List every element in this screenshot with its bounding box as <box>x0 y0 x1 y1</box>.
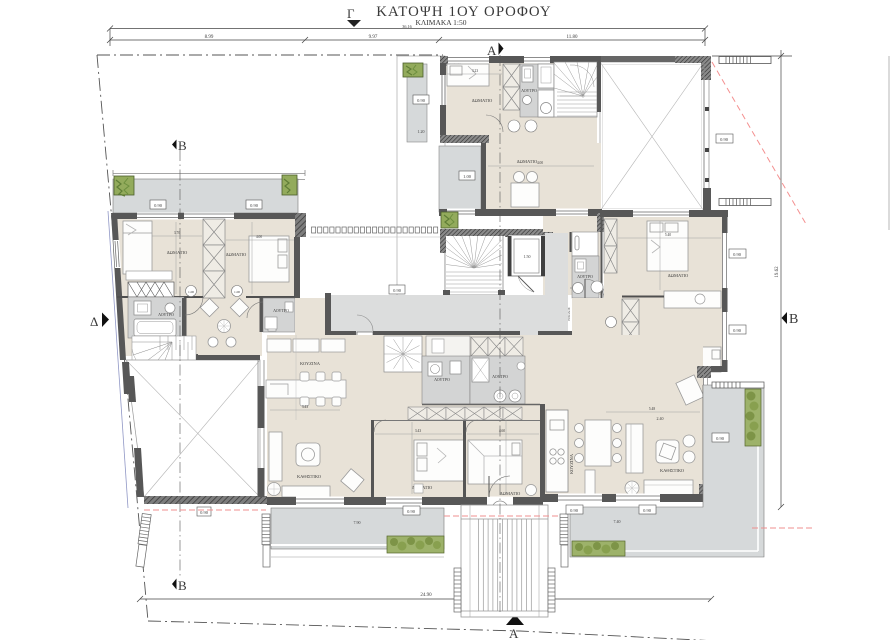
svg-text:7.40: 7.40 <box>614 519 621 524</box>
svg-text:0.90: 0.90 <box>250 203 259 208</box>
svg-text:ΔΩΜΑΤΙΟ: ΔΩΜΑΤΙΟ <box>517 159 538 164</box>
svg-text:1.50: 1.50 <box>524 254 531 259</box>
svg-text:3.23: 3.23 <box>472 69 478 73</box>
svg-text:ΔΩΜΑΤΙΟ: ΔΩΜΑΤΙΟ <box>668 273 689 278</box>
svg-text:ΚΟΥΖΙΝΑ: ΚΟΥΖΙΝΑ <box>300 361 321 366</box>
svg-text:3.70: 3.70 <box>174 231 180 235</box>
svg-text:8.99: 8.99 <box>205 35 214 40</box>
svg-text:Γ: Γ <box>347 6 355 21</box>
svg-text:0.90: 0.90 <box>154 203 163 208</box>
svg-text:0.90: 0.90 <box>200 510 209 515</box>
svg-text:5.48: 5.48 <box>649 407 655 411</box>
svg-text:ΕΙΣΟΔΟΣ: ΕΙΣΟΔΟΣ <box>567 307 571 320</box>
svg-text:3.43: 3.43 <box>415 429 421 433</box>
svg-text:0.90: 0.90 <box>643 508 652 513</box>
svg-text:1.20: 1.20 <box>418 129 425 134</box>
svg-text:ΔΩΜΑΤΙΟ: ΔΩΜΑΤΙΟ <box>226 252 247 257</box>
svg-text:1.00: 1.00 <box>188 290 194 294</box>
svg-text:4.00: 4.00 <box>256 235 262 239</box>
svg-text:ΛΟΥΤΡΟ: ΛΟΥΤΡΟ <box>577 274 593 279</box>
svg-text:3.43: 3.43 <box>302 405 308 409</box>
svg-text:4.60: 4.60 <box>499 429 505 433</box>
svg-text:36.16: 36.16 <box>402 24 411 29</box>
svg-text:1.00: 1.00 <box>463 174 472 179</box>
svg-text:Β: Β <box>178 138 187 153</box>
svg-text:Β: Β <box>789 312 798 327</box>
svg-text:5.40: 5.40 <box>665 233 671 237</box>
svg-text:0.90: 0.90 <box>733 328 742 333</box>
svg-text:ΚΛΙΜΑΚΑ 1:50: ΚΛΙΜΑΚΑ 1:50 <box>415 18 466 27</box>
svg-text:0.90: 0.90 <box>417 98 426 103</box>
svg-text:9.97: 9.97 <box>369 35 378 40</box>
svg-text:ΔΩΜΑΤΙΟ: ΔΩΜΑΤΙΟ <box>500 491 521 496</box>
svg-text:ΔΩΜΑΤΙΟ: ΔΩΜΑΤΙΟ <box>167 250 188 255</box>
svg-text:0.90: 0.90 <box>716 436 725 441</box>
svg-text:4.00: 4.00 <box>537 161 543 165</box>
svg-text:0.90: 0.90 <box>407 509 416 514</box>
svg-text:24.90: 24.90 <box>420 593 432 598</box>
svg-text:ΚΑΘΙΣΤΙΚΟ: ΚΑΘΙΣΤΙΚΟ <box>297 474 322 479</box>
svg-text:2.40: 2.40 <box>657 416 664 421</box>
svg-text:7.90: 7.90 <box>354 520 361 525</box>
svg-text:1.00: 1.00 <box>234 290 240 294</box>
svg-text:ΛΟΥΤΡΟ: ΛΟΥΤΡΟ <box>521 88 537 93</box>
svg-text:ΚΑΘΙΣΤΙΚΟ: ΚΑΘΙΣΤΙΚΟ <box>660 468 685 473</box>
svg-text:0.90: 0.90 <box>733 252 742 257</box>
svg-text:19.62: 19.62 <box>775 266 780 278</box>
svg-text:ΛΟΥΤΡΟ: ΛΟΥΤΡΟ <box>434 377 450 382</box>
svg-text:ΛΟΥΤΡΟ: ΛΟΥΤΡΟ <box>158 312 174 317</box>
svg-text:Δ: Δ <box>90 314 98 329</box>
svg-text:ΛΟΥΤΡΟ: ΛΟΥΤΡΟ <box>273 308 289 313</box>
svg-text:0.90: 0.90 <box>570 508 579 513</box>
svg-text:11.80: 11.80 <box>566 35 578 40</box>
svg-text:ΔΩΜΑΤΙΟ: ΔΩΜΑΤΙΟ <box>472 98 493 103</box>
svg-text:0.90: 0.90 <box>720 137 729 142</box>
svg-text:Β: Β <box>178 578 187 593</box>
svg-text:Α: Α <box>509 626 519 640</box>
svg-text:0.90: 0.90 <box>393 288 402 293</box>
svg-text:ΚΟΥΖΙΝΑ: ΚΟΥΖΙΝΑ <box>569 453 574 474</box>
